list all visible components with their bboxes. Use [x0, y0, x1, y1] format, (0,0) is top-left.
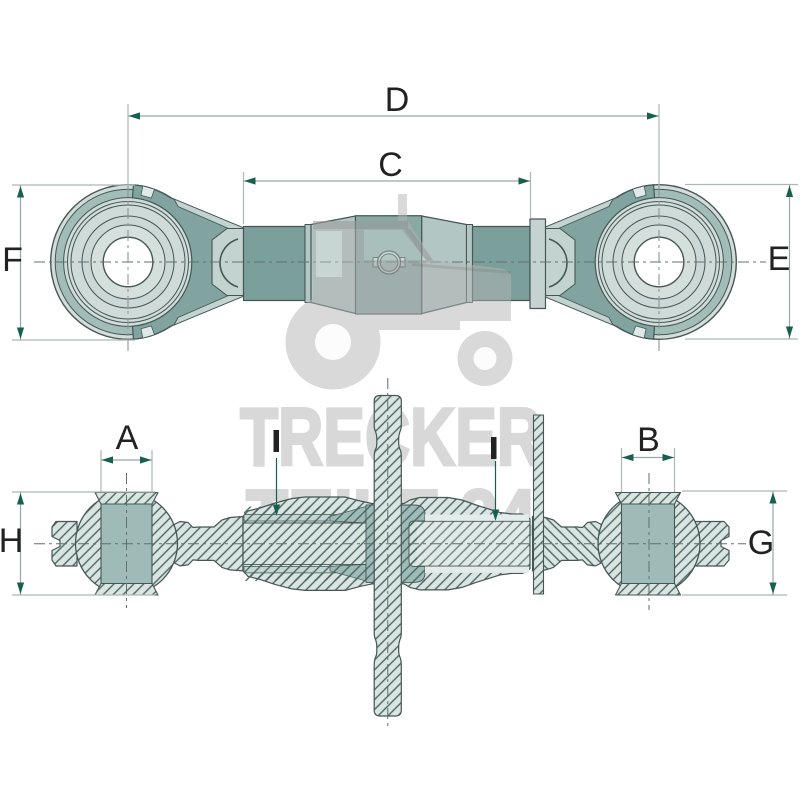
- svg-text:H: H: [0, 522, 23, 560]
- svg-text:F: F: [2, 241, 23, 279]
- svg-text:A: A: [116, 419, 139, 457]
- svg-text:G: G: [748, 524, 774, 562]
- svg-text:E: E: [768, 240, 791, 278]
- svg-text:B: B: [637, 421, 660, 459]
- svg-text:C: C: [378, 146, 403, 184]
- svg-text:D: D: [385, 81, 410, 119]
